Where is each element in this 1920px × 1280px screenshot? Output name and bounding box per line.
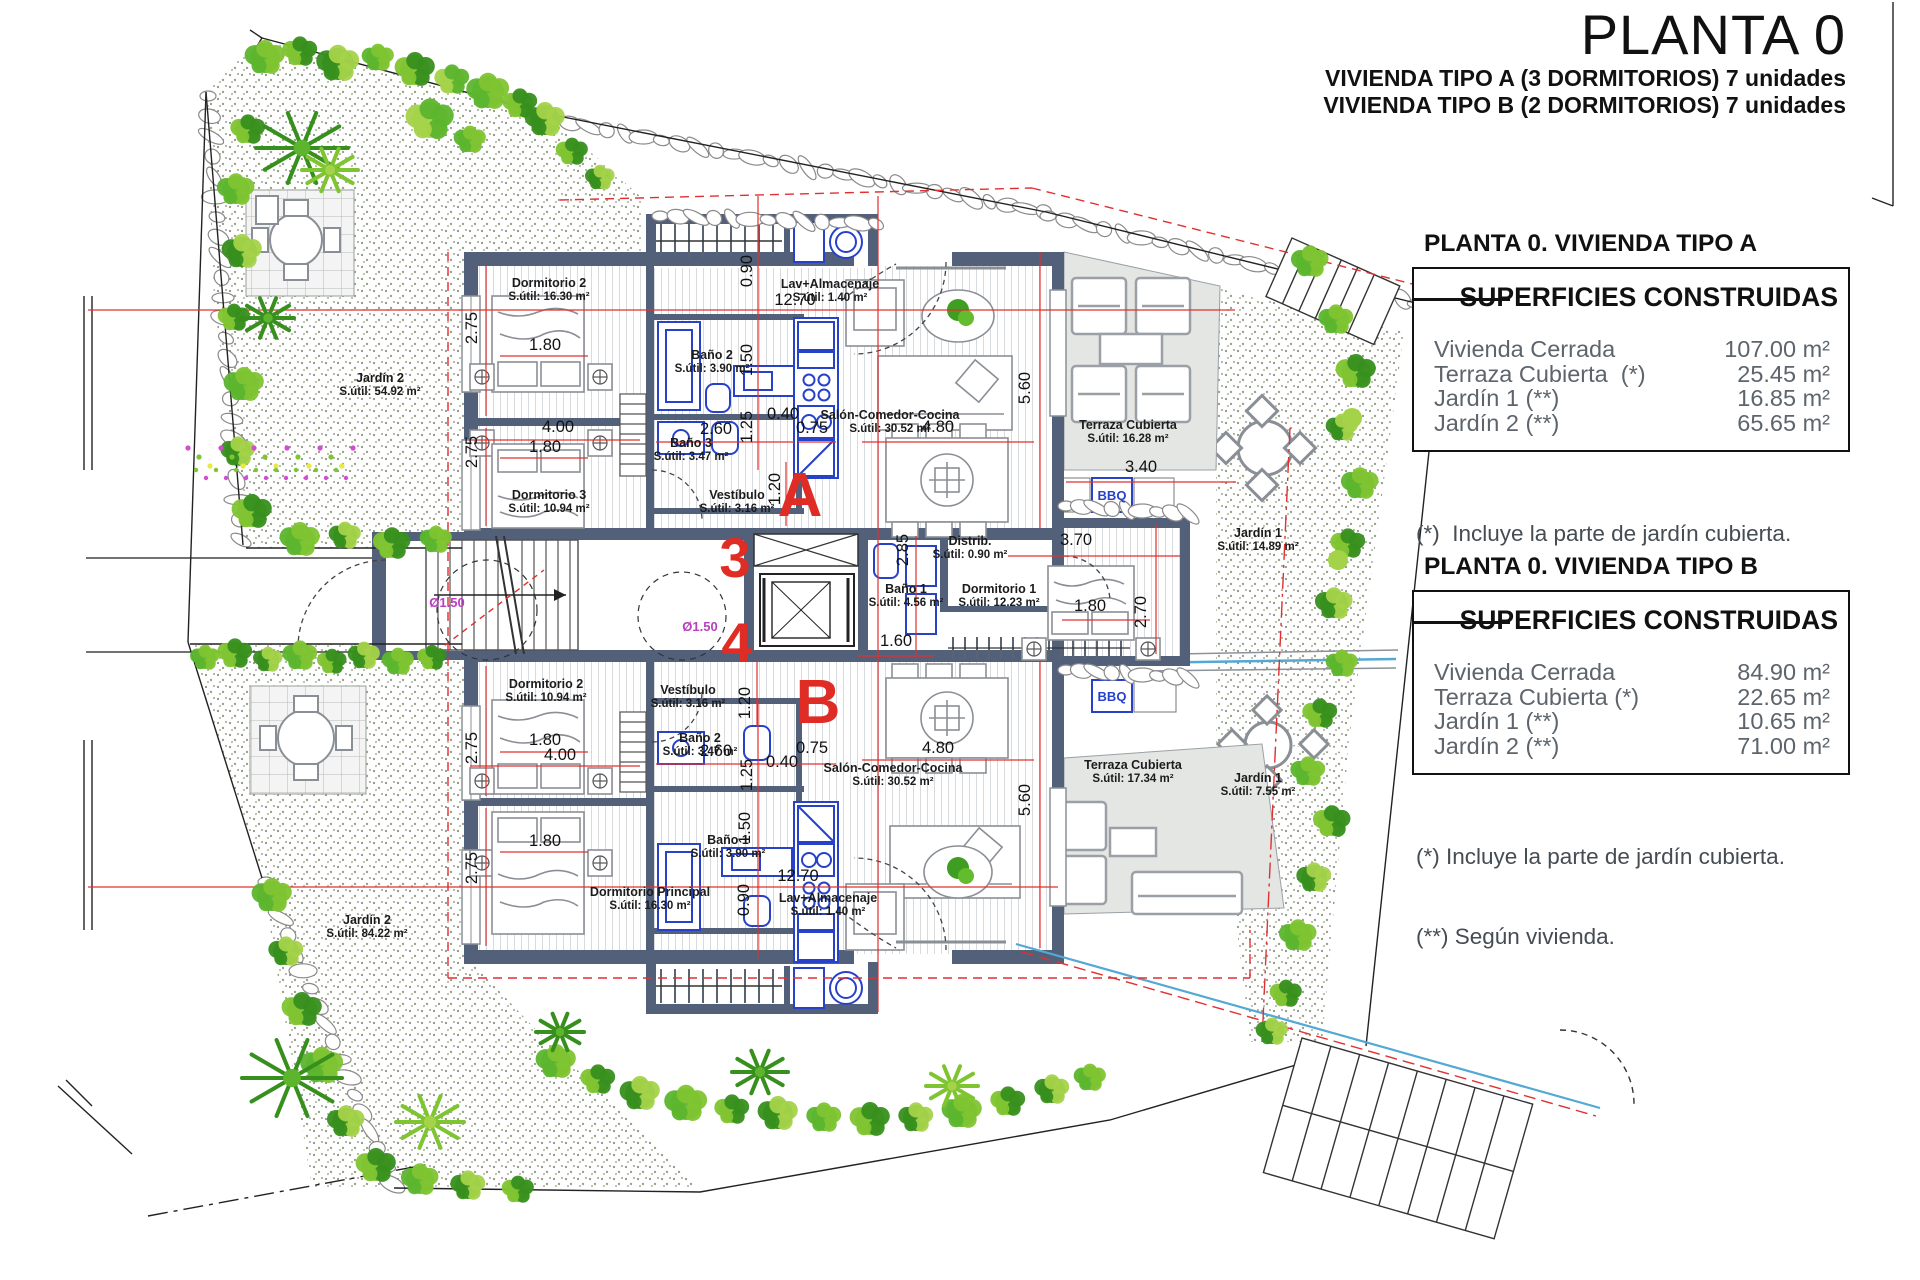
row-value: 10.65 m² xyxy=(1737,709,1830,734)
room-name: Baño 3 xyxy=(670,436,712,450)
dim: 2.75 xyxy=(463,732,481,764)
table-row: Jardín 2 (**) 65.65 m² xyxy=(1434,411,1830,436)
room-area: S.útil: 14.89 m² xyxy=(1217,541,1298,553)
bed-icon xyxy=(492,444,584,528)
row-value: 25.45 m² xyxy=(1737,362,1830,387)
dim: 1.50 xyxy=(738,344,756,376)
dim: 0.40 xyxy=(767,405,799,423)
room-name: Dormitorio 2 xyxy=(509,677,583,691)
dim: 5.60 xyxy=(1016,784,1034,816)
table-row: Vivienda Cerrada 107.00 m² xyxy=(1434,337,1830,362)
room-area: S.útil: 3.16 m² xyxy=(651,698,726,710)
table-row: Terraza Cubierta (*) 25.45 m² xyxy=(1434,362,1830,387)
room-area: S.útil: 10.94 m² xyxy=(508,503,589,515)
dim: 1.25 xyxy=(738,411,756,443)
room-name: Lav+Almacenaje xyxy=(781,277,879,291)
row-value: 65.65 m² xyxy=(1737,411,1830,436)
row-label: Vivienda Cerrada xyxy=(1434,660,1615,685)
table-row: Jardín 1 (**) 10.65 m² xyxy=(1434,709,1830,734)
room-area: S.útil: 1.40 m² xyxy=(791,906,866,918)
room-name: Vestíbulo xyxy=(660,683,716,697)
room-area: S.útil: 30.52 m² xyxy=(852,776,933,788)
table-row: Terraza Cubierta (*) 22.65 m² xyxy=(1434,685,1830,710)
unit-number: 3 xyxy=(719,526,750,589)
panel-b-table: SUPERFICIES CONSTRUIDAS Vivienda Cerrada… xyxy=(1412,590,1850,775)
elevator-icon xyxy=(754,534,858,646)
panel-a-table: SUPERFICIES CONSTRUIDAS Vivienda Cerrada… xyxy=(1412,267,1850,452)
dining-table-icon xyxy=(886,424,1008,537)
table-row: Jardín 2 (**) 71.00 m² xyxy=(1434,734,1830,759)
dim: 1.80 xyxy=(529,832,561,850)
room-name: Dormitorio 2 xyxy=(512,276,586,290)
room-area: S.útil: 0.90 m² xyxy=(933,549,1008,561)
footnote: (*) Incluye la parte de jardín cubierta. xyxy=(1416,521,1850,548)
dim: 2.70 xyxy=(1132,596,1150,628)
dim: 4.80 xyxy=(922,418,954,436)
unit-letter: A xyxy=(778,461,823,530)
room-name: Distrib. xyxy=(948,534,991,548)
row-label: Terraza Cubierta (*) xyxy=(1434,685,1639,710)
room-name: Dormitorio 1 xyxy=(962,582,1036,596)
room-name: Jardín 2 xyxy=(343,913,391,927)
dim: 3.70 xyxy=(1060,531,1092,549)
panel-b-heading: PLANTA 0. VIVIENDA TIPO B xyxy=(1424,553,1850,581)
circle-dim: Ø1.50 xyxy=(682,619,717,634)
row-value: 107.00 m² xyxy=(1724,337,1830,362)
room-name: Baño 1 xyxy=(885,582,927,596)
row-label: Jardín 2 (**) xyxy=(1434,734,1559,759)
dim: 1.80 xyxy=(529,438,561,456)
room-name: Baño 2 xyxy=(691,348,733,362)
row-value: 84.90 m² xyxy=(1737,660,1830,685)
dim: 2.75 xyxy=(463,852,481,884)
dim: 0.75 xyxy=(796,739,828,757)
garden-right-a xyxy=(1210,288,1404,748)
dim: 1.20 xyxy=(736,687,754,719)
row-label: Jardín 1 (**) xyxy=(1434,386,1559,411)
dim: 0.75 xyxy=(796,419,828,437)
table-row: Vivienda Cerrada 84.90 m² xyxy=(1434,660,1830,685)
bbq: BBQ xyxy=(1098,689,1127,704)
dim: 4.80 xyxy=(922,739,954,757)
dim: 12.70 xyxy=(777,867,818,885)
room-area: S.útil: 54.92 m² xyxy=(339,386,420,398)
dim: 1.50 xyxy=(736,812,754,844)
room-name: Dormitorio 3 xyxy=(512,488,586,502)
room-name: Terraza Cubierta xyxy=(1079,418,1178,432)
dim: 1.60 xyxy=(880,632,912,650)
room-name: Jardín 1 xyxy=(1234,771,1282,785)
dim: 1.80 xyxy=(529,336,561,354)
unit-letter: B xyxy=(796,668,841,737)
dim: 4.00 xyxy=(542,418,574,436)
room-area: S.útil: 3.16 m² xyxy=(700,503,775,515)
row-label: Terraza Cubierta (*) xyxy=(1434,362,1646,387)
dim: 1.25 xyxy=(738,759,756,791)
dim: 4.00 xyxy=(544,746,576,764)
panel-a-heading: PLANTA 0. VIVIENDA TIPO A xyxy=(1424,230,1850,258)
subtitle-tipo-a: VIVIENDA TIPO A (3 DORMITORIOS) 7 unidad… xyxy=(1323,65,1846,93)
row-label: Jardín 1 (**) xyxy=(1434,709,1559,734)
room-area: S.útil: 4.56 m² xyxy=(869,597,944,609)
dim: 2.75 xyxy=(463,312,481,344)
room-area: S.útil: 10.94 m² xyxy=(505,692,586,704)
room-name: Vestíbulo xyxy=(709,488,765,502)
table-title-rule xyxy=(1414,621,1510,624)
row-label: Jardín 2 (**) xyxy=(1434,411,1559,436)
dim: 1.80 xyxy=(1074,597,1106,615)
dim: 2.75 xyxy=(463,436,481,468)
room-name: Terraza Cubierta xyxy=(1084,758,1183,772)
room-area: S.útil: 16.30 m² xyxy=(508,291,589,303)
floorplan-page: Dormitorio 2S.útil: 16.30 m²Baño 2S.útil… xyxy=(0,0,1920,1280)
room-name: Jardín 1 xyxy=(1234,526,1282,540)
table-row: Jardín 1 (**) 16.85 m² xyxy=(1434,386,1830,411)
bed-icon xyxy=(492,812,584,934)
patio-table-icon xyxy=(278,710,334,766)
table-title-rule xyxy=(1414,298,1510,301)
dim: 3.40 xyxy=(1125,458,1157,476)
room-area: S.útil: 3.47 m² xyxy=(654,451,729,463)
room-area: S.útil: 17.34 m² xyxy=(1092,773,1173,785)
row-value: 16.85 m² xyxy=(1737,386,1830,411)
footnote: (**) Según vivienda. xyxy=(1416,924,1850,951)
title-block: PLANTA 0 VIVIENDA TIPO A (3 DORMITORIOS)… xyxy=(1323,6,1846,120)
subtitle-tipo-b: VIVIENDA TIPO B (2 DORMITORIOS) 7 unidad… xyxy=(1323,92,1846,120)
room-name: Salón-Comedor-Cocina xyxy=(824,761,964,775)
dim: 0.90 xyxy=(738,255,756,287)
room-area: S.útil: 84.22 m² xyxy=(326,928,407,940)
room-name: Lav+Almacenaje xyxy=(779,891,877,905)
row-value: 71.00 m² xyxy=(1737,734,1830,759)
row-label: Vivienda Cerrada xyxy=(1434,337,1615,362)
bbq: BBQ xyxy=(1098,488,1127,503)
dim: 0.40 xyxy=(766,753,798,771)
dim: 0.90 xyxy=(735,884,753,916)
dim: 12.70 xyxy=(774,291,815,309)
row-value: 22.65 m² xyxy=(1737,685,1830,710)
page-title: PLANTA 0 xyxy=(1323,6,1846,65)
room-area: S.útil: 16.28 m² xyxy=(1087,433,1168,445)
room-area: S.útil: 30.52 m² xyxy=(849,423,930,435)
dim: 5.60 xyxy=(1016,372,1034,404)
dim: 2.60 xyxy=(700,420,732,438)
room-area: S.útil: 7.55 m² xyxy=(1221,786,1296,798)
room-area: S.útil: 3.90 m² xyxy=(691,848,766,860)
panel-tipo-b: PLANTA 0. VIVIENDA TIPO B SUPERFICIES CO… xyxy=(1412,553,1850,1003)
room-area: S.útil: 16.30 m² xyxy=(609,900,690,912)
room-name: Jardín 2 xyxy=(356,371,404,385)
unit-number: 4 xyxy=(721,611,752,674)
room-name: Dormitorio Principal xyxy=(590,885,710,899)
footnote: (*) Incluye la parte de jardín cubierta. xyxy=(1416,844,1850,871)
dim: 2.60 xyxy=(700,742,732,760)
dim: 2.85 xyxy=(894,534,912,566)
circle-dim: Ø1.50 xyxy=(429,595,464,610)
room-area: S.útil: 12.23 m² xyxy=(958,597,1039,609)
access-path xyxy=(86,558,374,652)
